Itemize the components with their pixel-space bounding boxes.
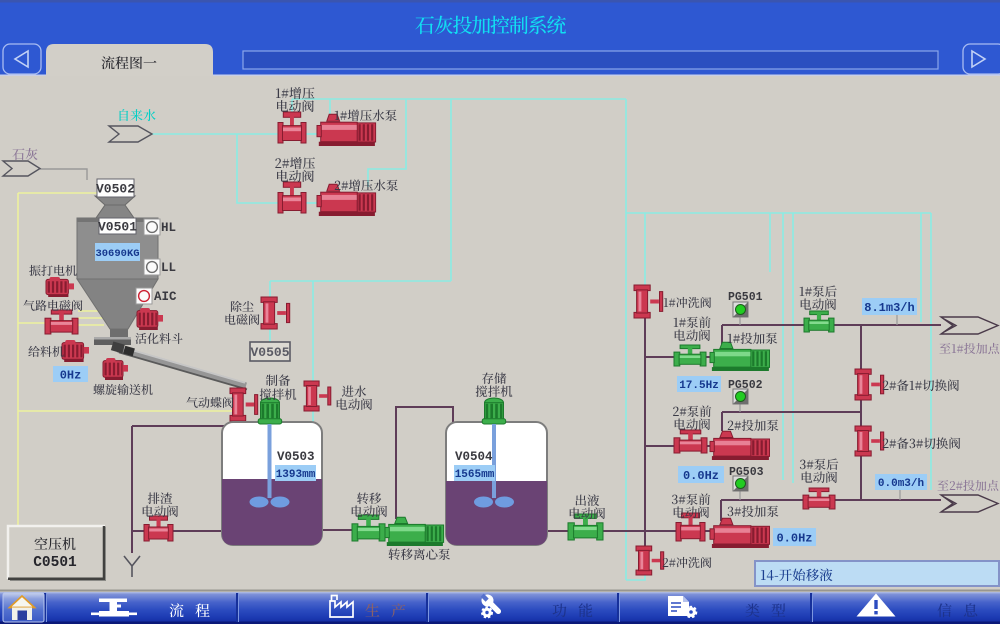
svg-text:1565mm: 1565mm — [455, 469, 495, 481]
svg-text:0.0Hz: 0.0Hz — [776, 531, 812, 545]
svg-text:AIC: AIC — [154, 290, 177, 304]
svg-text:17.5Hz: 17.5Hz — [679, 380, 719, 392]
svg-text:0.0Hz: 0.0Hz — [683, 469, 719, 483]
svg-text:30690KG: 30690KG — [95, 248, 139, 260]
svg-text:PG502: PG502 — [728, 379, 763, 392]
svg-text:V0504: V0504 — [455, 450, 493, 464]
svg-text:HL: HL — [161, 221, 176, 235]
svg-text:0.0m3/h: 0.0m3/h — [878, 478, 924, 490]
svg-text:8.1m3/h: 8.1m3/h — [864, 301, 914, 315]
svg-text:V0503: V0503 — [277, 450, 315, 464]
svg-text:V0501: V0501 — [98, 220, 137, 235]
svg-text:0Hz: 0Hz — [60, 368, 82, 382]
svg-text:C0501: C0501 — [33, 555, 77, 571]
svg-text:V0502: V0502 — [96, 182, 135, 197]
svg-text:V0505: V0505 — [250, 345, 289, 360]
svg-text:PG501: PG501 — [728, 291, 763, 304]
svg-text:PG503: PG503 — [729, 466, 764, 479]
svg-text:1393mm: 1393mm — [276, 469, 316, 481]
svg-text:LL: LL — [161, 261, 176, 275]
